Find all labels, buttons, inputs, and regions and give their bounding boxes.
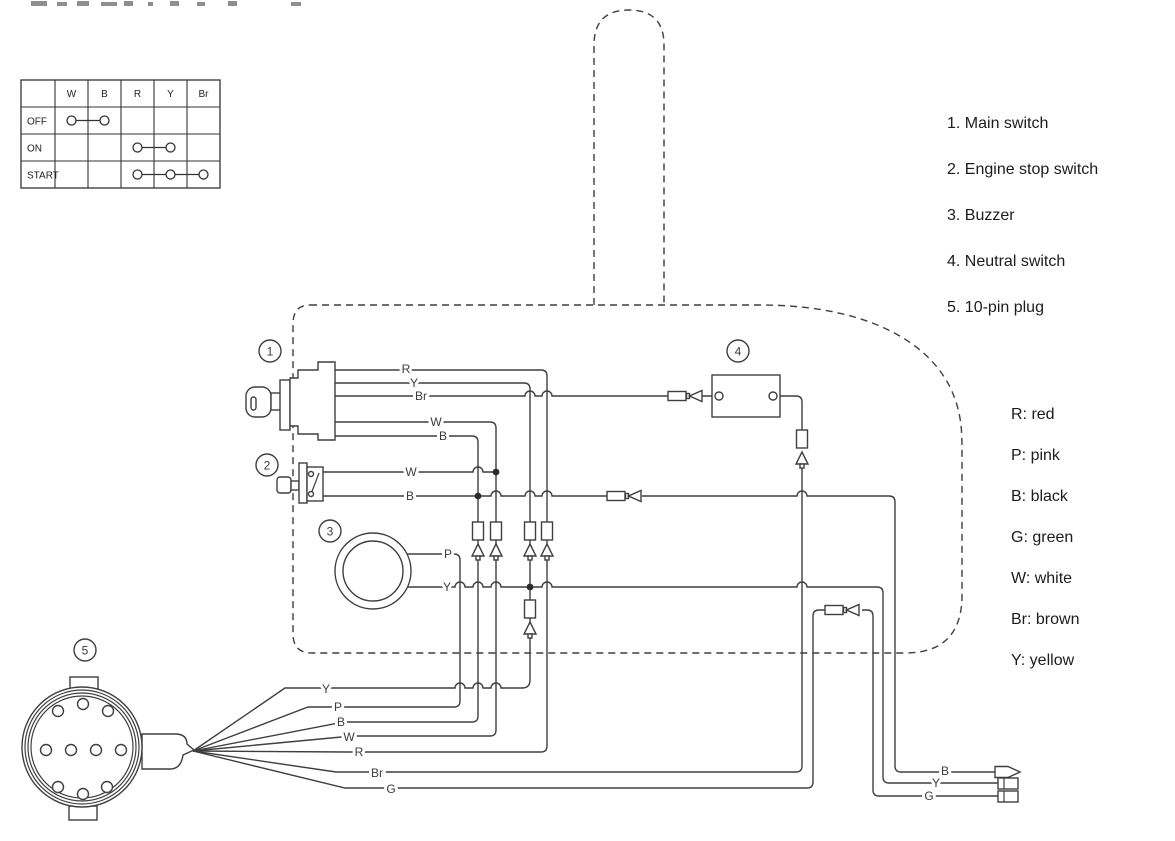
wire-label: Br [415,389,427,403]
wire-label: B [406,489,414,503]
wire-label: Br [371,766,383,780]
wire-label: W [405,465,417,479]
color-key-green: G: green [1011,530,1079,546]
wiring-diagram-page: { "pinout_table": { "column_headers": ["… [0,0,1175,841]
callout-main-switch: 1 [259,340,281,362]
wire-brown-to-neutral [335,391,715,396]
wire-label: Y [443,580,451,594]
wire-label: R [355,745,364,759]
main-switch-symbol [246,362,335,440]
wire-yellow-plug [193,587,530,751]
legend-item-buzzer: 3. Buzzer [947,208,1098,224]
col-header: Br [199,89,210,100]
wire-label: W [430,415,442,429]
wire-color-key: R: red P: pink B: black G: green W: whit… [1011,407,1079,694]
svg-text:3: 3 [327,525,334,539]
svg-text:1: 1 [267,345,274,359]
color-key-black: B: black [1011,489,1079,505]
wire-label: Y [932,776,940,790]
legend-item-ten-pin-plug: 5. 10-pin plug [947,300,1098,316]
legend-item-neutral-switch: 4. Neutral switch [947,254,1098,270]
connector-vertical [472,430,808,638]
switch-continuity-table: W B R Y Br OFF ON START [21,80,220,188]
color-key-brown: Br: brown [1011,612,1079,628]
connector-horizontal [607,391,859,616]
female-terminal [998,791,1018,802]
wire-label: G [924,789,933,803]
color-key-yellow: Y: yellow [1011,653,1079,669]
wire-label: R [402,362,411,376]
svg-text:2: 2 [264,459,271,473]
callout-buzzer: 3 [319,520,341,542]
svg-text:5: 5 [82,644,89,658]
engine-stop-switch-symbol [277,463,323,503]
legend-item-main-switch: 1. Main switch [947,116,1098,132]
wire-label: P [334,700,342,714]
cropped-heading-remnant [31,1,301,6]
lead-terminals [995,767,1020,803]
female-terminal [998,778,1018,789]
col-header: Y [167,89,174,100]
wire-black-stop [323,491,995,772]
buzzer-symbol [335,533,411,609]
row-label: OFF [27,117,47,128]
wire-label: G [386,782,395,796]
neutral-switch-symbol [712,375,780,417]
wire-label: P [444,547,452,561]
legend-item-engine-stop-switch: 2. Engine stop switch [947,162,1098,178]
row-label: ON [27,144,42,155]
ten-pin-plug-symbol [22,677,194,820]
callout-engine-stop-switch: 2 [256,454,278,476]
component-legend: 1. Main switch 2. Engine stop switch 3. … [947,116,1098,346]
grip-stalk-outline [594,10,664,305]
callout-ten-pin-plug: 5 [74,639,96,661]
callout-neutral-switch: 4 [727,340,749,362]
wire-label: W [343,730,355,744]
color-key-white: W: white [1011,571,1079,587]
color-key-red: R: red [1011,407,1079,423]
color-key-pink: P: pink [1011,448,1079,464]
col-header: B [101,89,108,100]
wire-label: Y [322,682,330,696]
wire-labels: R Y Br W B W B P Y Y P B W R Br G B Y G [322,362,949,803]
wire-label: B [941,764,949,778]
row-label: START [27,171,59,182]
col-header: R [134,89,141,100]
col-header: W [67,89,77,100]
wire-label: Y [410,376,418,390]
male-blade-terminal [995,767,1020,778]
svg-text:4: 4 [735,345,742,359]
wire-label: B [337,715,345,729]
wire-label: B [439,429,447,443]
